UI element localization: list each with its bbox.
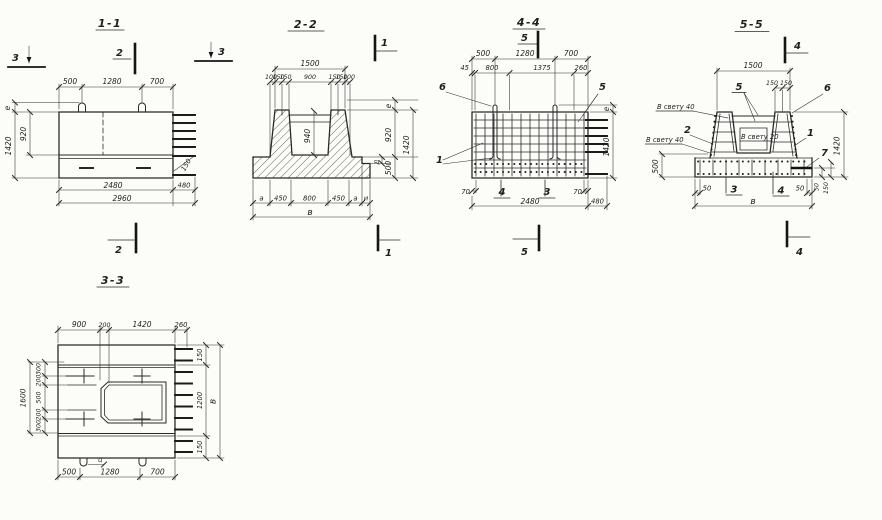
dim-label: 900 <box>72 320 87 329</box>
dim-label: 500 <box>63 77 78 86</box>
dim-label: 940 <box>303 129 312 144</box>
dimensions-3-3: 900 200 1420 260 1600 300 200 500 200 30… <box>20 320 224 480</box>
dim-letter: в <box>750 197 755 207</box>
view-title-3-3: 3-3 <box>97 274 129 287</box>
dim-label: 500 <box>384 161 393 176</box>
dim-letter: е <box>602 106 611 111</box>
view-title: 1-1 <box>98 17 122 30</box>
hairpin-bars <box>490 105 560 159</box>
reinforcement-cross-section-5-5 <box>695 112 812 177</box>
dim-label: 1600 <box>20 388 28 407</box>
cut-markers-2-2: 1 1 <box>375 36 400 259</box>
dim-label: 45 <box>460 64 469 72</box>
dim-label: 450 <box>332 195 345 203</box>
dim-letter: д <box>373 159 381 165</box>
view-title-2-2: 2-2 <box>288 18 324 31</box>
dim-label: 480 <box>178 182 191 190</box>
lifting-loop <box>139 103 146 112</box>
cut-label: 1 <box>385 248 392 259</box>
cut-label: 5 <box>521 33 528 44</box>
view-section-2-2: 2-2 1 1 1500 <box>230 10 450 260</box>
block-elevation-1-1 <box>59 103 195 178</box>
dim-label: 500 <box>36 391 43 403</box>
cut-label: 2 <box>116 48 123 59</box>
rebar-callout: 7 <box>821 148 828 159</box>
view-section-3-3: 3-3 <box>20 270 270 520</box>
lifting-loop <box>80 458 87 466</box>
dim-label: 150 <box>823 182 830 194</box>
plan-view-3-3: ц <box>58 345 192 466</box>
rebar-callout: 4 <box>498 187 506 198</box>
rebar-callout: 6 <box>824 83 831 94</box>
cut-label: 1 <box>381 38 388 49</box>
dim-label: 2480 <box>103 181 122 190</box>
dim-label: 700 <box>150 77 165 86</box>
dim-label: 1200 <box>196 392 204 409</box>
dim-label: 70 <box>461 188 470 196</box>
dim-label: 1500 <box>743 61 762 70</box>
dim-label: 1420 <box>833 136 842 155</box>
rebar-callout: 4 <box>777 186 785 197</box>
dimensions-1-1: 500 1280 700 е 920 1420 150 2480 480 296… <box>3 77 195 206</box>
callouts-5-5: 5 6 В свету 40 2 В свету 40 В свету 20 1… <box>645 82 831 168</box>
rebar-callout: 6 <box>439 82 446 93</box>
reinforcement-elevation-4-4 <box>472 105 607 178</box>
dim-label: 900 <box>304 74 316 81</box>
dim-label: 700 <box>564 49 579 58</box>
dim-label: 260 <box>575 64 588 72</box>
dim-label: 500 <box>651 159 660 174</box>
dim-letter: а <box>353 195 357 203</box>
rebar-callout: 1 <box>436 155 443 166</box>
dim-label: 300 <box>36 420 43 432</box>
lifting-loop <box>139 458 146 466</box>
dim-label: 150 <box>279 74 291 81</box>
dim-label: 1375 <box>533 64 550 72</box>
clear-dim-label: В свету 40 <box>657 103 695 111</box>
dim-label: 150 <box>196 349 204 362</box>
view-title: 4-4 <box>516 16 541 29</box>
dim-letter: е <box>3 105 12 110</box>
view-title: 3-3 <box>101 274 125 287</box>
cut-label: 5 <box>521 247 528 258</box>
dim-label: 200 <box>36 374 43 386</box>
dim-letter: в <box>307 208 312 218</box>
vertical-bars <box>476 114 584 176</box>
dim-label: 450 <box>274 195 287 203</box>
dim-label: 50 <box>703 185 712 193</box>
dim-label: 70 <box>573 188 582 196</box>
clear-dim-label: В свету 20 <box>741 133 779 141</box>
dim-label: 500 <box>476 49 491 58</box>
rebar-callout: 5 <box>736 82 743 93</box>
dim-label: 500 <box>62 468 77 477</box>
dim-label: 1280 <box>515 49 534 58</box>
cut-label: 3 <box>12 53 19 64</box>
dim-letter: и <box>364 195 369 203</box>
dim-label: 100 <box>343 74 355 81</box>
cut-label: 4 <box>793 41 801 52</box>
dim-label: 480 <box>591 198 604 206</box>
rebar-callout: 5 <box>599 82 606 93</box>
dim-label: 920 <box>19 127 28 142</box>
dim-label: 200 <box>36 408 43 420</box>
dim-label: 150 <box>196 441 204 454</box>
dim-label: 800 <box>486 64 499 72</box>
dim-label: 1420 <box>602 137 611 156</box>
cut-label: 4 <box>795 247 803 258</box>
dim-label: 1420 <box>132 320 151 329</box>
dim-label: 1280 <box>100 468 119 477</box>
lifting-point-marks <box>66 369 150 426</box>
dim-label: 1420 <box>4 136 13 155</box>
view-title: 5-5 <box>740 18 764 31</box>
dim-label: 50 <box>814 183 821 191</box>
dim-label: 260 <box>175 321 188 329</box>
cut-label: 3 <box>218 47 225 58</box>
cut-markers-1-1: 3 2 3 2 <box>8 42 232 256</box>
view-section-4-4: 4-4 5 5 <box>435 10 665 270</box>
dim-label: 2480 <box>520 197 539 206</box>
dim-letter: в <box>209 399 219 404</box>
protruding-bars <box>175 349 192 452</box>
dim-label: 2960 <box>112 194 131 203</box>
dim-label: 150 <box>766 80 778 87</box>
rebar-callout: 1 <box>807 128 814 139</box>
clear-dim-label: В свету 40 <box>646 136 684 144</box>
base-stirrups <box>700 160 804 175</box>
dim-label: 920 <box>384 128 393 143</box>
dim-letter: ц <box>98 457 102 464</box>
dim-letter: е <box>384 103 393 108</box>
dim-label: 200 <box>98 322 110 329</box>
dim-label: 150 <box>780 80 792 87</box>
lifting-loop <box>79 103 86 112</box>
dim-label: 50 <box>796 185 805 193</box>
view-title-4-4: 4-4 <box>513 16 545 29</box>
dim-letter: а <box>259 195 263 203</box>
dim-label: 800 <box>303 195 316 203</box>
dim-label: 300 <box>36 363 43 375</box>
dim-label: 150 <box>180 157 193 172</box>
view-title: 2-2 <box>294 18 318 31</box>
view-section-5-5: 5-5 4 4 <box>645 10 882 275</box>
view-title-5-5: 5-5 <box>735 18 769 32</box>
dim-label: 1420 <box>402 135 411 154</box>
rebar-callout: 3 <box>731 185 738 196</box>
view-title-1-1: 1-1 <box>96 17 124 30</box>
cut-label: 2 <box>115 245 122 256</box>
dim-label: 700 <box>150 468 165 477</box>
rebar-callout: 2 <box>684 125 691 136</box>
dim-label: 1500 <box>300 59 319 68</box>
channel-opening <box>101 382 166 423</box>
view-section-1-1: 1-1 3 2 3 2 <box>0 0 240 270</box>
drawing-sheet: 1-1 3 2 3 2 <box>0 0 882 520</box>
dim-label: 1280 <box>102 77 121 86</box>
rebar-callout: 3 <box>544 187 551 198</box>
